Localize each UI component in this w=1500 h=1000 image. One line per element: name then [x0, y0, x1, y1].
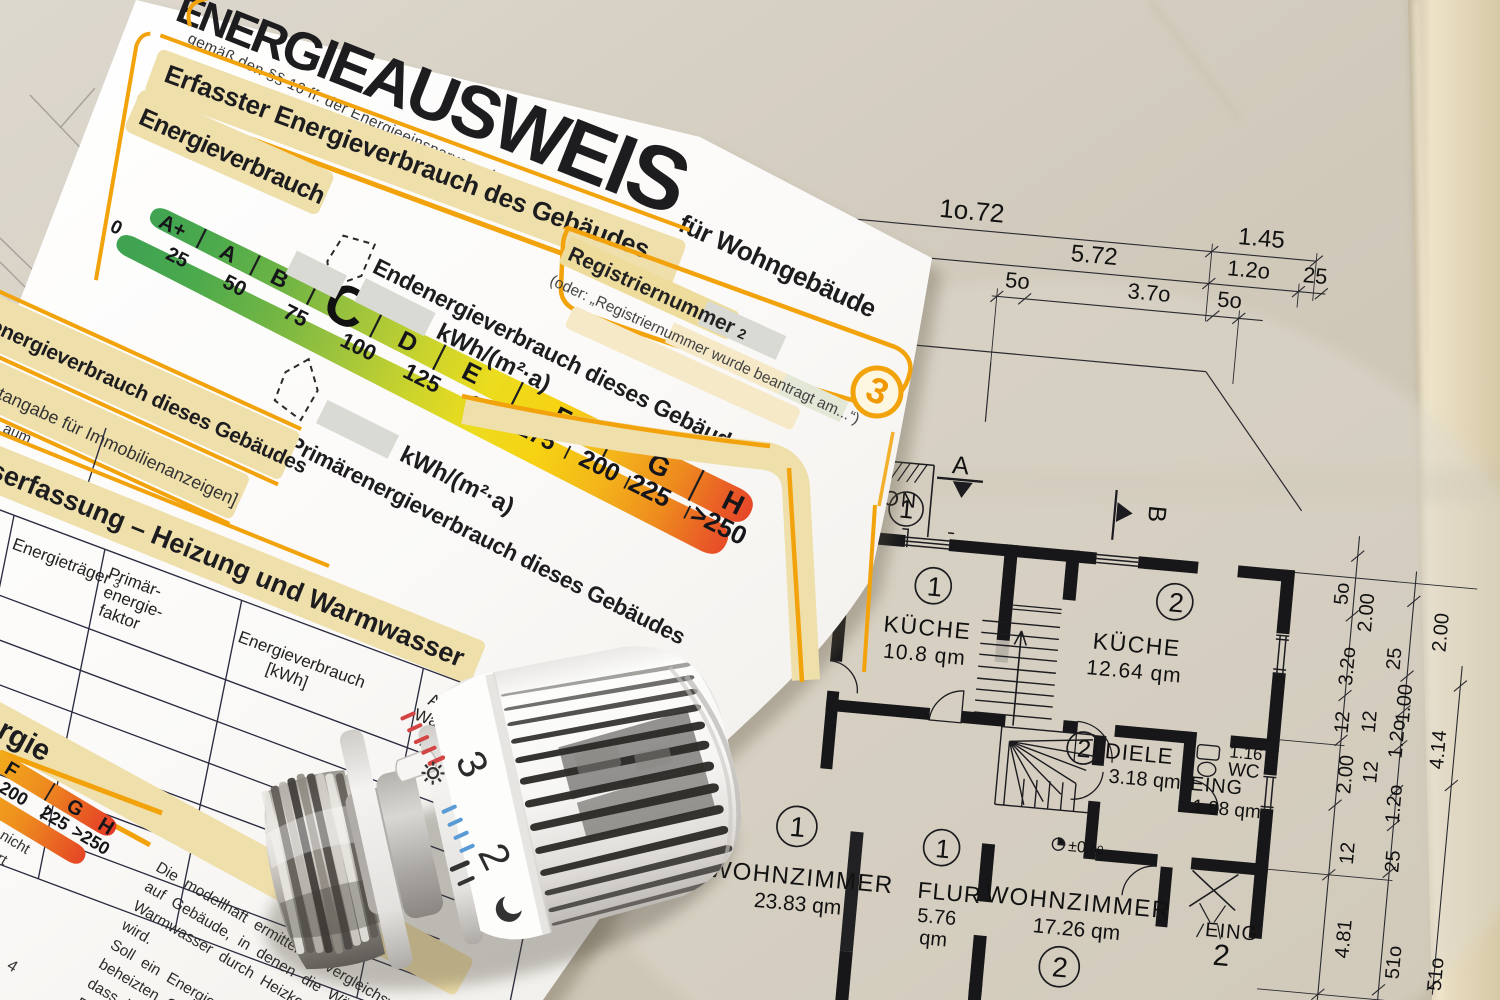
svg-text:4.81: 4.81 — [1331, 919, 1356, 960]
svg-text:25: 25 — [1381, 849, 1405, 873]
svg-text:51o: 51o — [1424, 957, 1449, 992]
svg-text:2.00: 2.00 — [1354, 592, 1379, 633]
svg-text:12: 12 — [1358, 710, 1382, 734]
svg-text:1: 1 — [926, 571, 944, 602]
svg-text:12: 12 — [1331, 710, 1355, 734]
svg-text:5o: 5o — [1330, 582, 1354, 606]
svg-text:3.2o: 3.2o — [1335, 646, 1360, 687]
svg-text:25: 25 — [1302, 262, 1329, 289]
svg-text:1.2o: 1.2o — [1226, 255, 1271, 284]
svg-text:4.14: 4.14 — [1426, 729, 1451, 770]
svg-text:5o: 5o — [1004, 267, 1031, 294]
svg-text:51o: 51o — [1382, 945, 1407, 980]
svg-text:2: 2 — [1167, 587, 1185, 618]
svg-text:5.72: 5.72 — [1070, 240, 1119, 271]
svg-text:25: 25 — [1383, 647, 1407, 671]
svg-text:2: 2 — [1051, 951, 1069, 983]
svg-text:A: A — [951, 451, 970, 480]
svg-text:2.00: 2.00 — [1428, 612, 1453, 653]
svg-text:12: 12 — [1336, 841, 1360, 865]
svg-text:12: 12 — [1359, 760, 1383, 784]
svg-text:1.2o: 1.2o — [1385, 719, 1410, 760]
svg-text:1.45: 1.45 — [1237, 223, 1286, 254]
svg-text:2: 2 — [1076, 735, 1092, 764]
svg-text:5o: 5o — [1216, 286, 1243, 313]
svg-text:2: 2 — [1211, 939, 1231, 973]
svg-text:1: 1 — [788, 811, 806, 843]
svg-text:1.2o: 1.2o — [1382, 784, 1407, 825]
svg-text:B: B — [1142, 504, 1171, 523]
svg-text:1: 1 — [934, 833, 951, 864]
svg-text:2.00: 2.00 — [1333, 754, 1358, 795]
svg-text:1.00: 1.00 — [1392, 683, 1417, 724]
svg-text:qm: qm — [918, 927, 948, 951]
svg-text:3.7o: 3.7o — [1127, 278, 1172, 307]
svg-text:1o.72: 1o.72 — [938, 193, 1006, 229]
